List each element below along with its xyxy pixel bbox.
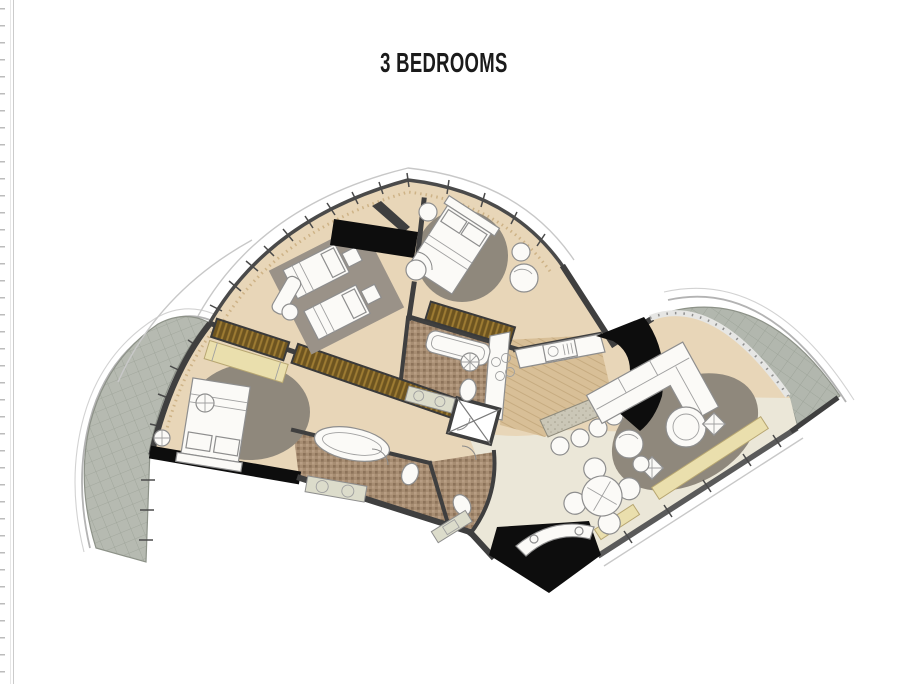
bar-stool-1 bbox=[551, 437, 569, 455]
entry bbox=[489, 521, 601, 593]
coffee-table bbox=[666, 407, 706, 447]
bedroom2-ottoman bbox=[512, 243, 530, 261]
bedroom2-nightstand-1 bbox=[419, 203, 437, 221]
console-knob-2 bbox=[575, 527, 583, 535]
living-ottoman bbox=[633, 456, 649, 472]
console-knob-1 bbox=[530, 535, 538, 543]
floor-plan-drawing bbox=[0, 0, 922, 684]
floor-plan-page: 3 BEDROOMS bbox=[0, 0, 922, 684]
bedroom2-armchair bbox=[510, 264, 538, 292]
master-pillow-2 bbox=[214, 436, 240, 456]
bar-stool-2 bbox=[571, 429, 589, 447]
bath2-shower-spokes bbox=[461, 353, 479, 371]
chaise-side-table bbox=[282, 304, 298, 320]
master-pillow-1 bbox=[186, 432, 212, 452]
bedroom2-nightstand-2 bbox=[406, 260, 426, 280]
